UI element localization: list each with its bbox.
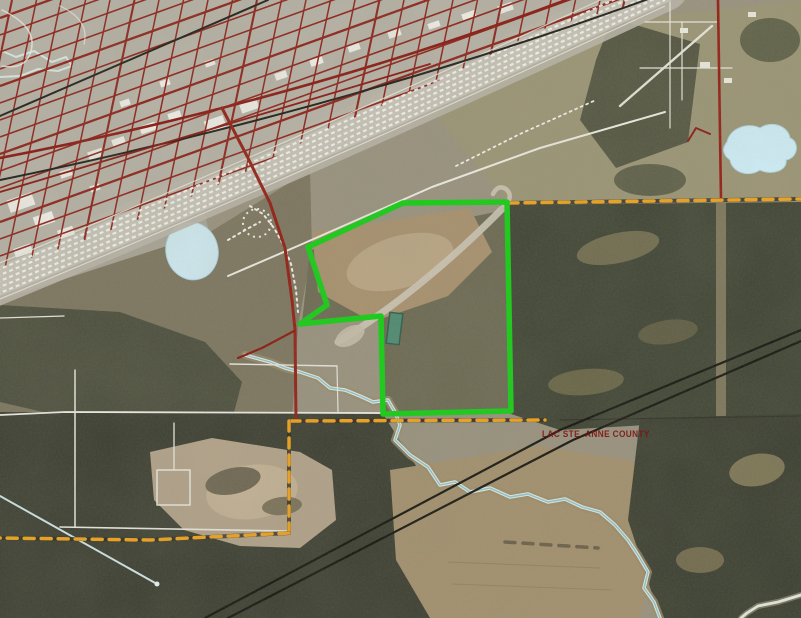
farm-building (748, 12, 756, 17)
southeast-forest (628, 414, 801, 618)
pipeline-end-marker (155, 582, 160, 587)
forest-patch (614, 164, 686, 196)
farm-building (680, 28, 688, 33)
gis-map-view[interactable]: LAC STE. ANNE COUNTY (0, 0, 801, 618)
farm-building (724, 78, 732, 83)
forest-patch (740, 18, 800, 62)
farm-building (700, 62, 710, 68)
aerial-basemap[interactable] (0, 0, 801, 618)
range-road-surface (716, 202, 726, 418)
clearing (676, 547, 724, 573)
northeast-lake (724, 124, 797, 173)
lagoon-cell (386, 312, 403, 344)
